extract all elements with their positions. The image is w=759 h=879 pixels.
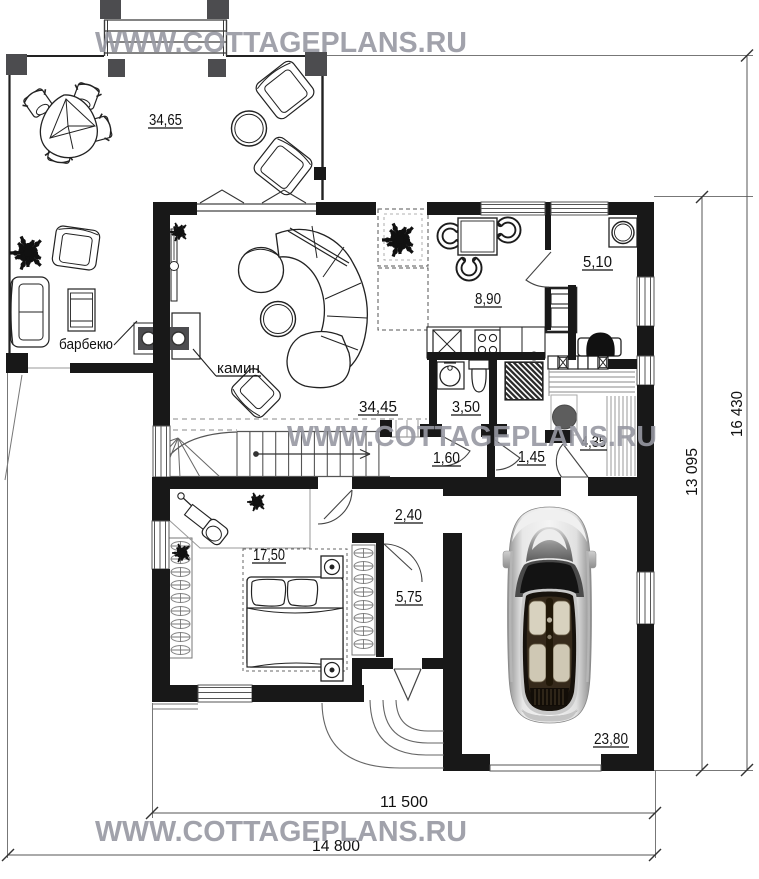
svg-text:16 430: 16 430: [729, 391, 746, 437]
svg-text:2,40: 2,40: [395, 507, 422, 524]
svg-text:WWW.COTTAGEPLANS.RU: WWW.COTTAGEPLANS.RU: [287, 421, 657, 453]
svg-text:23,80: 23,80: [594, 731, 628, 748]
svg-text:камин: камин: [217, 360, 260, 377]
svg-text:34,65: 34,65: [149, 112, 182, 129]
svg-text:3,50: 3,50: [452, 399, 480, 416]
svg-text:11 500: 11 500: [380, 794, 428, 811]
svg-text:8,90: 8,90: [475, 291, 501, 308]
svg-text:17,50: 17,50: [253, 547, 285, 564]
svg-text:13 095: 13 095: [684, 448, 701, 496]
svg-text:5,75: 5,75: [396, 589, 422, 606]
svg-text:34,45: 34,45: [359, 399, 397, 416]
svg-text:WWW.COTTAGEPLANS.RU: WWW.COTTAGEPLANS.RU: [95, 27, 467, 59]
svg-text:барбекю: барбекю: [59, 336, 113, 353]
svg-text:WWW.COTTAGEPLANS.RU: WWW.COTTAGEPLANS.RU: [95, 816, 467, 848]
svg-text:5,10: 5,10: [583, 254, 612, 271]
